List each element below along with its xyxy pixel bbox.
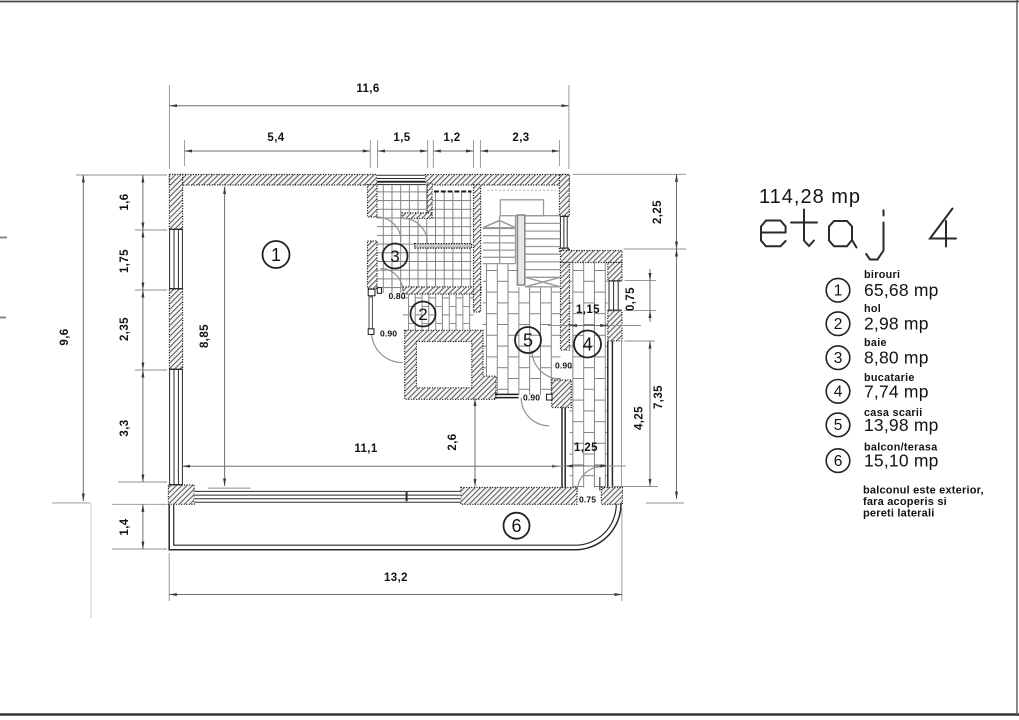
svg-text:13,2: 13,2 [384,572,408,584]
svg-text:65,68 mp: 65,68 mp [864,280,939,300]
svg-text:pereti laterali: pereti laterali [863,508,934,520]
svg-text:2: 2 [418,305,427,324]
svg-text:0.90: 0.90 [523,393,540,403]
svg-text:1,25: 1,25 [574,442,598,454]
svg-text:8,80 mp: 8,80 mp [864,348,929,368]
svg-text:5,4: 5,4 [267,132,284,144]
svg-text:2,25: 2,25 [652,200,664,224]
svg-text:8,85: 8,85 [199,324,211,348]
svg-text:1,75: 1,75 [119,249,131,273]
svg-text:4,25: 4,25 [634,406,646,430]
svg-text:3,3: 3,3 [119,419,131,436]
svg-text:11,6: 11,6 [356,83,379,95]
svg-text:2,98 mp: 2,98 mp [864,314,929,334]
svg-text:0.80: 0.80 [389,291,406,301]
svg-text:1: 1 [834,283,843,300]
svg-text:0.90: 0.90 [380,329,397,339]
svg-text:4: 4 [582,335,592,355]
svg-text:3: 3 [834,350,843,367]
svg-text:5: 5 [834,417,843,434]
svg-text:3: 3 [390,247,399,266]
svg-text:7,35: 7,35 [653,385,665,409]
svg-text:7,74 mp: 7,74 mp [864,381,929,401]
svg-text:0,75: 0,75 [625,287,637,311]
svg-text:11,1: 11,1 [354,443,378,455]
svg-text:1,5: 1,5 [393,132,410,144]
svg-text:fara acoperis si: fara acoperis si [863,496,947,508]
svg-text:9,6: 9,6 [59,328,71,345]
svg-text:1,4: 1,4 [119,518,131,535]
svg-text:0.75: 0.75 [579,495,596,505]
svg-text:5: 5 [523,331,533,351]
svg-text:1,6: 1,6 [119,193,131,210]
svg-text:birouri: birouri [864,269,900,281]
svg-text:6: 6 [511,516,521,536]
svg-text:1,2: 1,2 [443,132,460,144]
svg-text:4: 4 [834,384,843,401]
svg-text:2,3: 2,3 [512,132,529,144]
svg-text:2,35: 2,35 [119,317,131,341]
svg-text:0.90: 0.90 [555,361,572,371]
svg-text:1,15: 1,15 [576,304,600,316]
svg-text:1: 1 [271,245,281,265]
svg-text:13,98 mp: 13,98 mp [864,415,939,435]
svg-text:2: 2 [834,316,843,333]
svg-text:114,28 mp: 114,28 mp [759,186,861,208]
svg-text:6: 6 [834,453,843,470]
svg-text:2,6: 2,6 [447,433,459,450]
svg-text:15,10 mp: 15,10 mp [864,451,939,471]
svg-text:balconul este exterior,: balconul este exterior, [863,485,984,497]
